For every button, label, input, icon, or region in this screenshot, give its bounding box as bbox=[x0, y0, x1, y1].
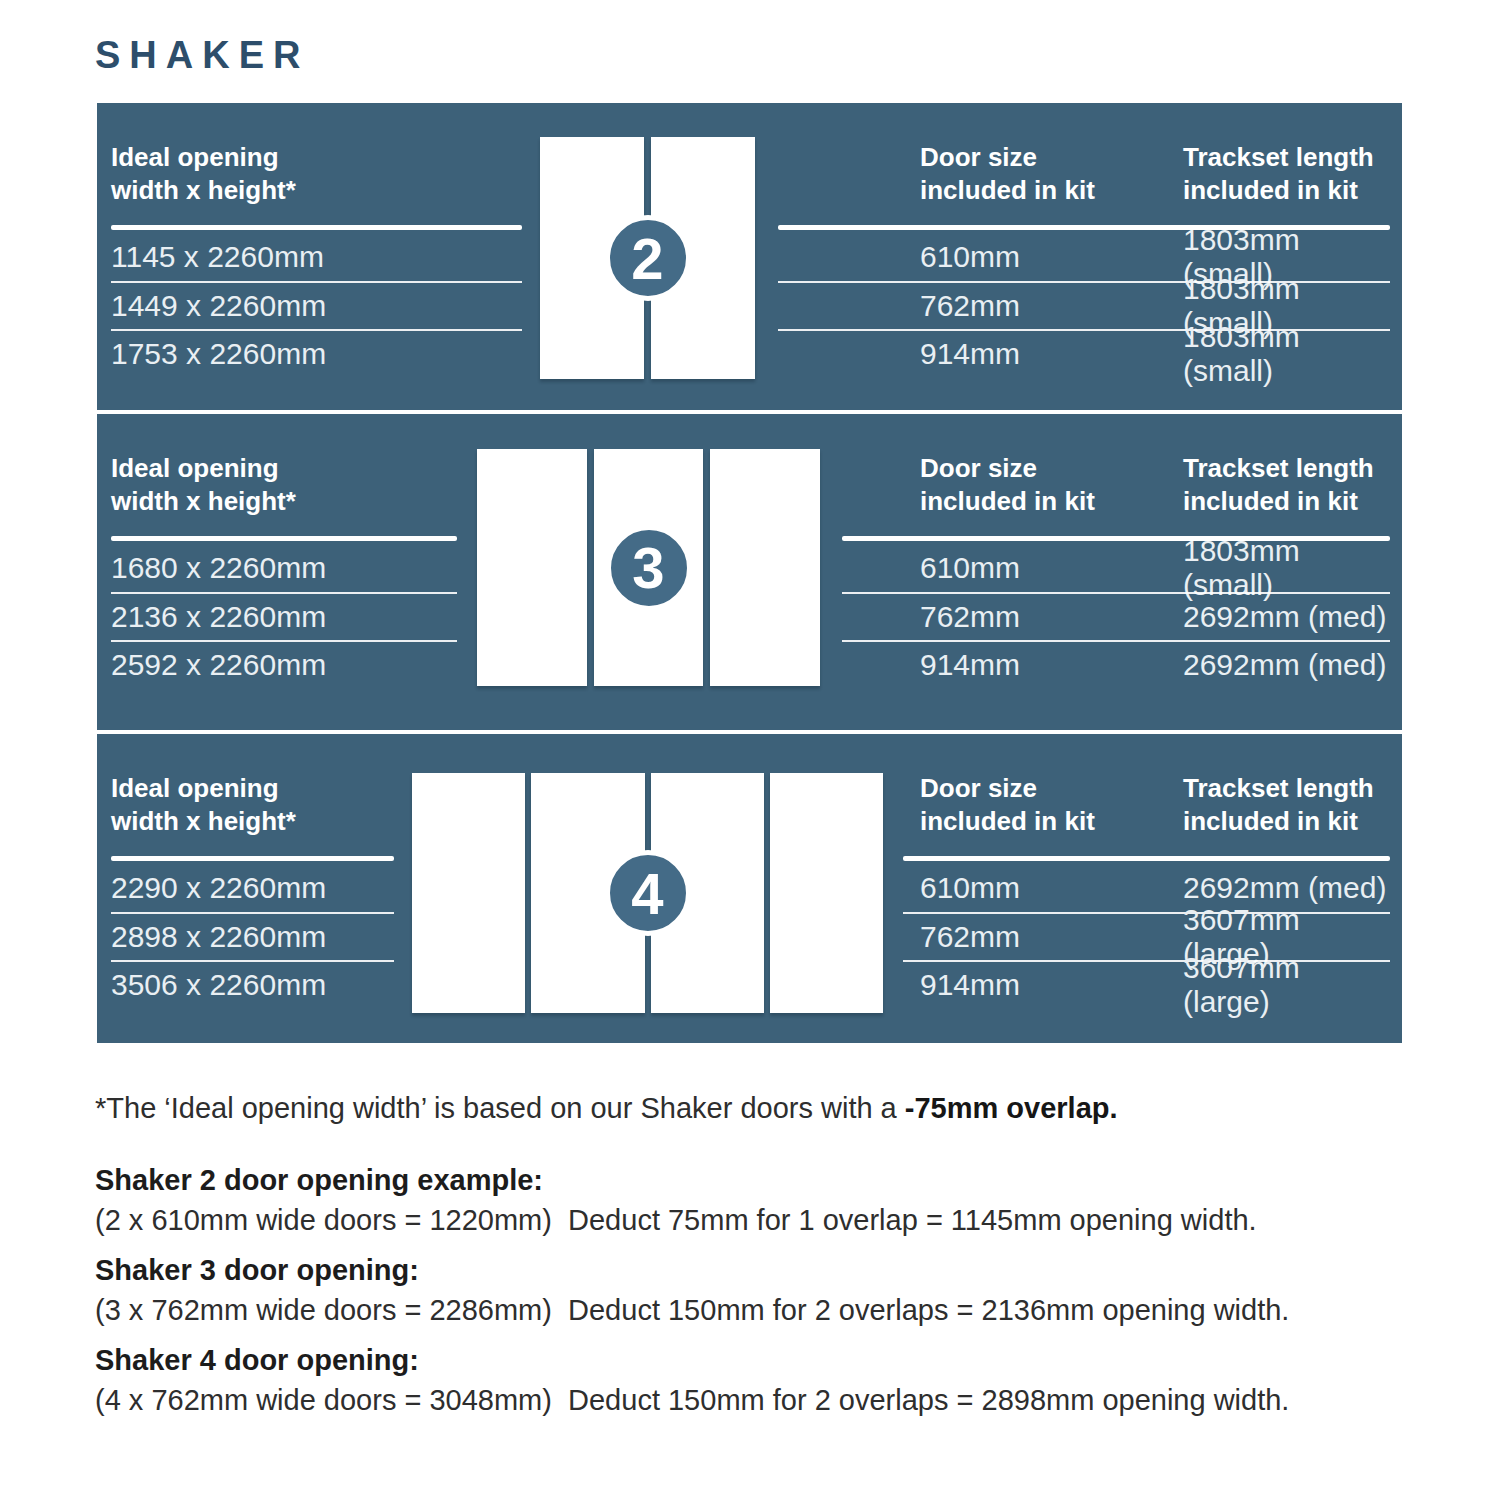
footnote-text: *The ‘Ideal opening width’ is based on o… bbox=[95, 1092, 905, 1124]
door-size-header: Door size included in kit bbox=[920, 141, 1095, 207]
kit-row: 610mm 1803mm (small) bbox=[842, 544, 1390, 592]
kit-table: Door size included in kit Trackset lengt… bbox=[842, 414, 1390, 730]
page-title: SHAKER bbox=[95, 34, 309, 77]
opening-header: Ideal opening width x height* bbox=[111, 141, 296, 207]
spec-panel: Ideal opening width x height* 1145 x 226… bbox=[97, 103, 1402, 1043]
example-3-door: Shaker 3 door opening: (3 x 762mm wide d… bbox=[95, 1250, 1289, 1330]
examples: Shaker 2 door opening example: (2 x 610m… bbox=[95, 1160, 1289, 1430]
kit-row: 914mm 2692mm (med) bbox=[842, 640, 1390, 688]
door-size-value: 914mm bbox=[920, 968, 1020, 1002]
kit-row: 914mm 1803mm (small) bbox=[778, 329, 1390, 377]
opening-column: Ideal opening width x height* 1680 x 226… bbox=[111, 414, 457, 730]
trackset-value: 1803mm (small) bbox=[1183, 320, 1390, 388]
door-size-value: 610mm bbox=[920, 240, 1020, 274]
door-panel bbox=[710, 449, 820, 686]
trackset-value: 3607mm (large) bbox=[1183, 951, 1390, 1019]
opening-rows: 1145 x 2260mm 1449 x 2260mm 1753 x 2260m… bbox=[111, 233, 522, 377]
opening-row: 2592 x 2260mm bbox=[111, 640, 457, 688]
door-size-value: 914mm bbox=[920, 337, 1020, 371]
opening-header: Ideal opening width x height* bbox=[111, 772, 296, 838]
door-diagram-4: 4 bbox=[412, 773, 883, 1013]
trackset-value: 2692mm (med) bbox=[1183, 648, 1386, 682]
example-detail: (4 x 762mm wide doors = 3048mm) Deduct 1… bbox=[95, 1380, 1289, 1420]
example-heading: Shaker 3 door opening: bbox=[95, 1250, 1289, 1290]
door-size-header: Door size included in kit bbox=[920, 772, 1095, 838]
header-rule bbox=[111, 225, 522, 230]
door-size-value: 762mm bbox=[920, 600, 1020, 634]
door-panel bbox=[412, 773, 525, 1013]
opening-row: 3506 x 2260mm bbox=[111, 960, 394, 1008]
opening-row: 1145 x 2260mm bbox=[111, 233, 522, 281]
door-panel bbox=[770, 773, 883, 1013]
door-count-badge: 4 bbox=[605, 850, 691, 936]
footnote: *The ‘Ideal opening width’ is based on o… bbox=[95, 1090, 1118, 1126]
kit-rows: 610mm 2692mm (med) 762mm 3607mm (large) … bbox=[903, 864, 1390, 1008]
shaker-3-door-section: Ideal opening width x height* 1680 x 226… bbox=[97, 414, 1402, 730]
opening-row: 1753 x 2260mm bbox=[111, 329, 522, 377]
kit-rows: 610mm 1803mm (small) 762mm 2692mm (med) … bbox=[842, 544, 1390, 688]
page: SHAKER Ideal opening width x height* 114… bbox=[0, 0, 1500, 1500]
door-size-value: 610mm bbox=[920, 551, 1020, 585]
kit-table: Door size included in kit Trackset lengt… bbox=[903, 734, 1390, 1043]
trackset-header: Trackset length included in kit bbox=[1183, 452, 1374, 518]
shaker-4-door-section: Ideal opening width x height* 2290 x 226… bbox=[97, 734, 1402, 1043]
footnote-bold: -75mm overlap. bbox=[905, 1092, 1118, 1124]
example-2-door: Shaker 2 door opening example: (2 x 610m… bbox=[95, 1160, 1289, 1240]
door-size-value: 610mm bbox=[920, 871, 1020, 905]
example-4-door: Shaker 4 door opening: (4 x 762mm wide d… bbox=[95, 1340, 1289, 1420]
kit-rows: 610mm 1803mm (small) 762mm 1803mm (small… bbox=[778, 233, 1390, 377]
kit-row: 914mm 3607mm (large) bbox=[903, 960, 1390, 1008]
door-count-badge: 3 bbox=[606, 525, 692, 611]
door-diagram-3: 3 bbox=[477, 449, 820, 686]
opening-row: 1449 x 2260mm bbox=[111, 281, 522, 329]
door-size-value: 762mm bbox=[920, 920, 1020, 954]
door-diagram-2: 2 bbox=[540, 137, 755, 379]
example-heading: Shaker 2 door opening example: bbox=[95, 1160, 1289, 1200]
door-size-header: Door size included in kit bbox=[920, 452, 1095, 518]
opening-column: Ideal opening width x height* 2290 x 226… bbox=[111, 734, 394, 1043]
door-count-badge: 2 bbox=[605, 215, 691, 301]
trackset-header: Trackset length included in kit bbox=[1183, 141, 1374, 207]
example-detail: (2 x 610mm wide doors = 1220mm) Deduct 7… bbox=[95, 1200, 1289, 1240]
opening-rows: 2290 x 2260mm 2898 x 2260mm 3506 x 2260m… bbox=[111, 864, 394, 1008]
trackset-value: 2692mm (med) bbox=[1183, 871, 1386, 905]
door-size-value: 762mm bbox=[920, 289, 1020, 323]
door-panel bbox=[477, 449, 587, 686]
header-rule bbox=[111, 856, 394, 861]
shaker-2-door-section: Ideal opening width x height* 1145 x 226… bbox=[97, 103, 1402, 410]
opening-row: 2898 x 2260mm bbox=[111, 912, 394, 960]
trackset-header: Trackset length included in kit bbox=[1183, 772, 1374, 838]
opening-row: 2290 x 2260mm bbox=[111, 864, 394, 912]
opening-row: 1680 x 2260mm bbox=[111, 544, 457, 592]
header-rule bbox=[111, 536, 457, 541]
opening-rows: 1680 x 2260mm 2136 x 2260mm 2592 x 2260m… bbox=[111, 544, 457, 688]
kit-row: 762mm 2692mm (med) bbox=[842, 592, 1390, 640]
example-heading: Shaker 4 door opening: bbox=[95, 1340, 1289, 1380]
opening-column: Ideal opening width x height* 1145 x 226… bbox=[111, 103, 522, 410]
kit-table: Door size included in kit Trackset lengt… bbox=[778, 103, 1390, 410]
door-size-value: 914mm bbox=[920, 648, 1020, 682]
example-detail: (3 x 762mm wide doors = 2286mm) Deduct 1… bbox=[95, 1290, 1289, 1330]
opening-header: Ideal opening width x height* bbox=[111, 452, 296, 518]
header-rule bbox=[903, 856, 1390, 861]
trackset-value: 2692mm (med) bbox=[1183, 600, 1386, 634]
opening-row: 2136 x 2260mm bbox=[111, 592, 457, 640]
